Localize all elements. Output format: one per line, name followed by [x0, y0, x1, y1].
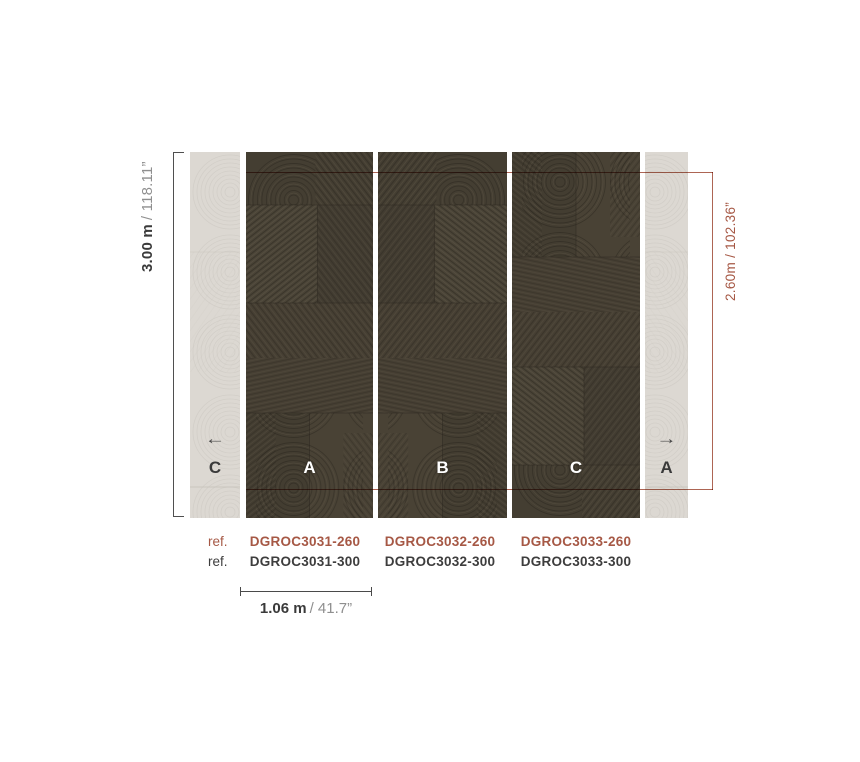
panel-width-label: 1.06 m/ 41.7” — [236, 600, 376, 617]
panel-a: A — [246, 152, 373, 518]
accent-height-label: 2.60m / 102.36” — [723, 202, 738, 301]
accent-height-line-bottom — [246, 489, 713, 490]
total-height-label: 3.00 m/ 118.11” — [139, 161, 156, 272]
arrow-right-icon: → — [641, 430, 693, 448]
panel-letter: A — [246, 459, 373, 477]
total-height-metric: 3.00 m — [139, 224, 156, 272]
total-height-imperial: / 118.11” — [139, 161, 156, 220]
ref-code: DGROC3031-300 — [239, 554, 371, 570]
panel-c: C — [512, 152, 640, 518]
panel-width-imperial: / 41.7” — [310, 600, 353, 617]
accent-height-line-right — [712, 172, 713, 490]
total-height-bracket-tick-bottom — [173, 516, 184, 517]
arrow-left-icon: ← — [185, 430, 245, 448]
panel-letter: B — [378, 459, 507, 477]
total-height-bracket-line — [173, 152, 174, 517]
ref-label-300: ref. — [208, 554, 228, 570]
panel-right-partial: → A — [645, 152, 688, 518]
panel-letter: A — [645, 459, 688, 477]
panel-width-metric: 1.06 m — [260, 600, 307, 617]
panel-b: B — [378, 152, 507, 518]
ref-code: DGROC3032-260 — [374, 534, 506, 550]
wallpaper-dimension-diagram: 3.00 m/ 118.11” ← C A B C → A 2.60m / 10… — [0, 0, 860, 762]
accent-height-line-top — [246, 172, 713, 173]
total-height-bracket-tick-top — [173, 152, 184, 153]
ref-code: DGROC3031-260 — [239, 534, 371, 550]
panel-width-line — [240, 591, 372, 592]
panel-left-partial: ← C — [190, 152, 240, 518]
panel-letter: C — [190, 459, 240, 477]
ref-code: DGROC3033-300 — [510, 554, 642, 570]
ref-label-260: ref. — [208, 534, 228, 550]
ref-code: DGROC3032-300 — [374, 554, 506, 570]
ref-code: DGROC3033-260 — [510, 534, 642, 550]
panel-letter: C — [512, 459, 640, 477]
